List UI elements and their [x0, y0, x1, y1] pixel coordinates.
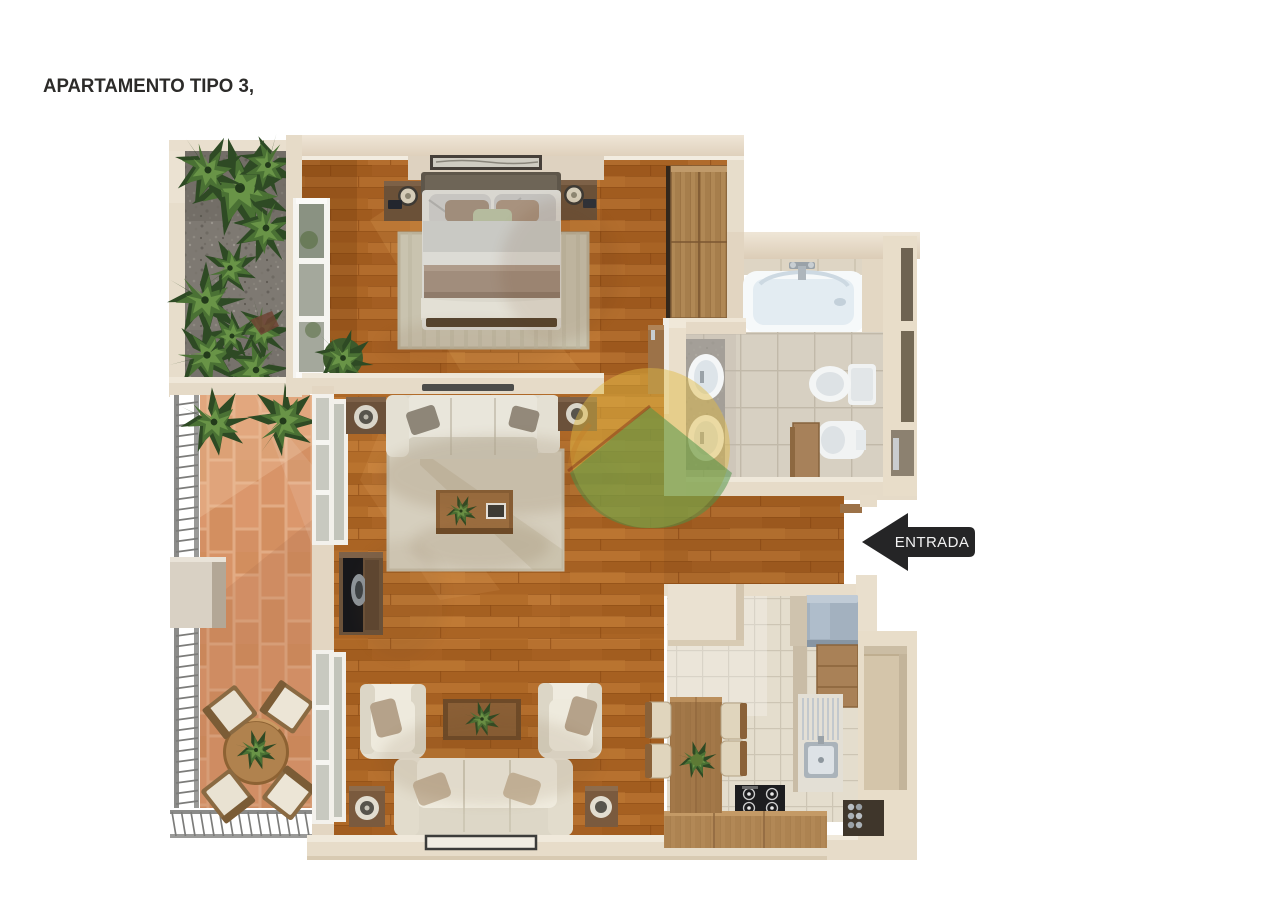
svg-text:APARTAMENTO TIPO 3,: APARTAMENTO TIPO 3, — [43, 76, 254, 97]
svg-text:ENTRADA: ENTRADA — [895, 534, 969, 551]
